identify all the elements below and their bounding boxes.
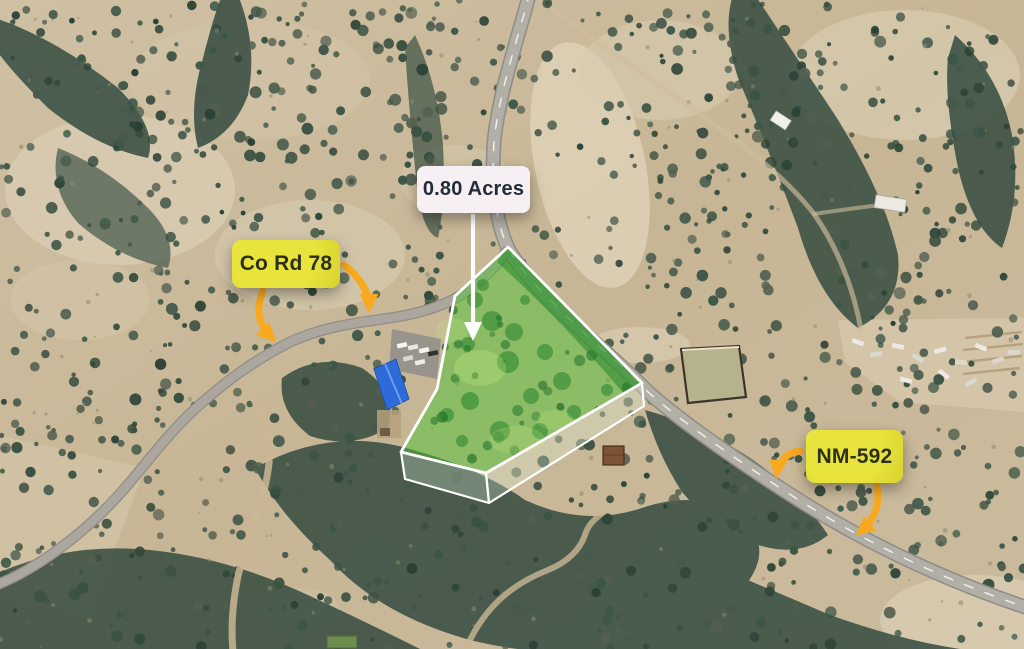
tree	[617, 101, 624, 108]
tree	[406, 152, 413, 159]
tree	[982, 383, 992, 393]
tree	[663, 504, 667, 508]
tree	[679, 212, 690, 223]
tree	[386, 56, 393, 63]
shrub	[131, 41, 134, 44]
shrub	[235, 52, 239, 56]
tree	[706, 174, 712, 180]
tree	[76, 35, 84, 43]
tree	[785, 638, 790, 643]
tree	[490, 59, 497, 66]
tree	[897, 366, 903, 372]
shrub	[70, 181, 75, 186]
shrub	[202, 118, 206, 122]
tree	[889, 564, 894, 569]
tree	[408, 8, 412, 12]
tree	[65, 435, 74, 444]
tree	[345, 450, 352, 457]
tree	[821, 190, 829, 198]
tree	[287, 301, 294, 308]
tree	[632, 164, 637, 169]
tree	[113, 324, 120, 331]
tree	[722, 482, 729, 489]
shrub	[87, 618, 92, 623]
tree	[934, 222, 939, 227]
acreage-label-text: 0.80 Acres	[423, 178, 524, 201]
tree	[452, 583, 460, 591]
tree	[985, 463, 992, 470]
tree	[760, 397, 765, 402]
tree	[367, 583, 371, 587]
shrub	[150, 268, 155, 273]
tree	[328, 125, 338, 135]
deck-shed	[380, 428, 390, 436]
tree	[421, 522, 429, 530]
shrub	[86, 300, 91, 305]
shrub	[943, 528, 948, 533]
tree	[68, 471, 76, 479]
shrub	[28, 79, 31, 82]
tree	[646, 455, 654, 463]
tree	[946, 97, 958, 109]
tree	[602, 615, 613, 626]
tree	[919, 134, 927, 142]
tree	[697, 522, 707, 532]
tree	[1004, 573, 1013, 582]
tree	[540, 230, 550, 240]
tree	[742, 484, 751, 493]
tree	[741, 172, 746, 177]
tree	[300, 206, 306, 212]
shrub	[475, 21, 477, 23]
shrub	[198, 512, 200, 514]
tree	[820, 352, 831, 363]
tree	[836, 302, 841, 307]
tree	[914, 542, 921, 549]
tree	[768, 512, 779, 523]
tree	[748, 103, 753, 108]
shrub	[695, 279, 697, 281]
tree	[241, 211, 246, 216]
tree	[608, 246, 612, 250]
shrub	[82, 402, 85, 405]
shrub	[108, 83, 111, 86]
tree	[645, 284, 650, 289]
tree	[555, 227, 561, 233]
tree	[795, 455, 803, 463]
tree	[372, 290, 380, 298]
tree	[596, 12, 601, 17]
tree	[788, 137, 799, 148]
tree	[13, 609, 17, 613]
tree	[36, 28, 45, 37]
tree	[294, 16, 300, 22]
tree	[812, 160, 818, 166]
tree	[43, 67, 49, 73]
shrub	[722, 613, 726, 617]
tree	[426, 49, 433, 56]
tree	[419, 267, 425, 273]
tree	[871, 26, 879, 34]
tree	[91, 362, 95, 366]
tree	[636, 23, 642, 29]
tree	[387, 99, 393, 105]
tree	[176, 378, 182, 384]
tree	[435, 91, 446, 102]
tree	[119, 218, 123, 222]
tree	[159, 389, 167, 397]
tree	[25, 304, 33, 312]
tree	[234, 54, 242, 62]
shrub	[659, 547, 663, 551]
tree	[957, 635, 965, 643]
tree	[757, 254, 765, 262]
tree	[334, 520, 343, 529]
tree	[254, 213, 263, 222]
tree	[328, 363, 332, 367]
tree	[1010, 198, 1018, 206]
tree	[45, 232, 50, 237]
tree	[10, 56, 15, 61]
tree	[69, 377, 79, 387]
tree	[903, 398, 913, 408]
tree	[924, 164, 933, 173]
tree	[225, 346, 230, 351]
tree	[226, 290, 232, 296]
tree	[304, 414, 309, 419]
tree	[171, 152, 182, 163]
tree	[267, 607, 271, 611]
tree	[164, 164, 172, 172]
tree	[43, 485, 53, 495]
tree	[686, 14, 690, 18]
nm-592-label: NM-592	[806, 430, 903, 483]
tree	[131, 444, 141, 454]
shrub	[34, 18, 37, 21]
shrub	[991, 445, 995, 449]
tree	[252, 462, 264, 474]
shrub	[166, 111, 168, 113]
tree	[965, 221, 970, 226]
shrub	[941, 600, 944, 603]
tree	[754, 122, 762, 130]
tree	[222, 604, 228, 610]
tree	[172, 180, 176, 184]
tree	[660, 59, 666, 65]
tree	[806, 521, 815, 530]
tree	[173, 240, 179, 246]
tree	[912, 498, 924, 510]
tree	[301, 377, 309, 385]
tree	[347, 479, 353, 485]
tree	[934, 71, 939, 76]
tree	[714, 190, 720, 196]
tree	[78, 235, 84, 241]
tree	[185, 127, 191, 133]
tree	[917, 272, 923, 278]
shrub	[908, 579, 910, 581]
tree	[646, 253, 657, 264]
tree	[296, 484, 302, 490]
tree	[396, 40, 407, 51]
tree	[723, 246, 730, 253]
tree	[344, 433, 355, 444]
tree	[738, 529, 744, 535]
tree	[605, 606, 615, 616]
tree	[136, 130, 144, 138]
tree	[14, 266, 20, 272]
shrub	[969, 235, 972, 238]
tree	[309, 451, 319, 461]
tree	[349, 9, 356, 16]
tree	[11, 442, 22, 453]
tree	[220, 364, 230, 374]
tree	[833, 61, 838, 66]
tree	[881, 290, 887, 296]
tree	[82, 336, 88, 342]
tree	[236, 403, 246, 413]
tree	[167, 51, 177, 61]
tree	[974, 83, 984, 93]
tree	[369, 558, 378, 567]
tree	[244, 150, 256, 162]
tree	[805, 407, 810, 412]
tree	[479, 16, 489, 26]
tree	[46, 425, 51, 430]
tree	[820, 341, 828, 349]
tree	[195, 301, 206, 312]
tree	[671, 63, 683, 75]
tree	[250, 222, 260, 232]
tree	[669, 268, 678, 277]
tree	[268, 38, 276, 46]
tree	[915, 455, 919, 459]
tree	[274, 578, 285, 589]
tree	[547, 120, 557, 130]
tree	[1010, 164, 1016, 170]
tree	[7, 279, 13, 285]
shrub	[241, 299, 245, 303]
tree	[846, 183, 854, 191]
tree	[349, 178, 355, 184]
tree	[616, 615, 621, 620]
tree	[426, 155, 435, 164]
tree	[836, 359, 842, 365]
shrub	[570, 254, 573, 257]
tree	[992, 326, 1003, 337]
tree	[220, 210, 225, 215]
tree	[152, 183, 161, 192]
tree	[425, 507, 432, 514]
tree	[652, 131, 658, 137]
tree	[22, 6, 30, 14]
tree	[752, 516, 757, 521]
tree	[829, 228, 835, 234]
tree	[968, 300, 978, 310]
tree	[481, 109, 487, 115]
tree	[733, 28, 740, 35]
tree	[111, 6, 121, 16]
tree	[403, 295, 408, 300]
tree	[95, 85, 100, 90]
tree	[236, 530, 246, 540]
tree	[390, 193, 396, 199]
tree	[710, 169, 715, 174]
tree	[460, 545, 468, 553]
tree	[861, 261, 868, 268]
tree	[664, 283, 670, 289]
tree	[344, 471, 349, 476]
tree	[202, 499, 209, 506]
tree	[398, 53, 407, 62]
tree	[715, 287, 726, 298]
tree	[310, 68, 321, 79]
tree	[858, 497, 867, 506]
shrub	[471, 606, 476, 611]
tree	[866, 488, 872, 494]
tree	[384, 38, 395, 49]
shrub	[447, 239, 449, 241]
tree	[767, 563, 776, 572]
shrub	[645, 45, 649, 49]
shrub	[1012, 146, 1016, 150]
tree	[872, 402, 877, 407]
tree	[194, 602, 203, 611]
tree	[769, 205, 774, 210]
tree	[171, 547, 176, 552]
tree	[433, 268, 439, 274]
tree	[895, 630, 902, 637]
tree	[697, 129, 703, 135]
tree	[946, 25, 950, 29]
tree	[166, 303, 178, 315]
tree	[729, 484, 738, 493]
tree	[202, 527, 207, 532]
tree	[1009, 391, 1017, 399]
tree	[305, 189, 316, 200]
tree	[569, 497, 574, 502]
tree	[964, 46, 974, 56]
tree	[491, 241, 496, 246]
tree	[835, 485, 841, 491]
tree	[230, 529, 235, 534]
shrub	[477, 38, 480, 41]
shrub	[762, 577, 765, 580]
tree	[373, 577, 382, 586]
tree	[223, 466, 230, 473]
tree	[853, 554, 863, 564]
tree	[358, 149, 369, 160]
tree	[789, 71, 799, 81]
tree	[236, 134, 244, 142]
tree	[674, 258, 682, 266]
tree	[704, 93, 713, 102]
tree	[165, 90, 170, 95]
tree	[817, 69, 824, 76]
shrub	[343, 568, 346, 571]
tree	[26, 619, 31, 624]
tree	[659, 54, 663, 58]
tree	[718, 319, 730, 331]
tree	[960, 88, 968, 96]
tree	[279, 183, 287, 191]
tree	[34, 591, 46, 603]
tree	[779, 558, 787, 566]
tree	[161, 283, 171, 293]
tree	[750, 2, 756, 8]
tree	[156, 406, 161, 411]
tree	[58, 175, 65, 182]
tree	[198, 85, 209, 96]
tree	[3, 163, 10, 170]
tree	[307, 398, 317, 408]
tree	[760, 438, 768, 446]
tree	[711, 621, 722, 632]
tree	[540, 535, 546, 541]
tree	[20, 331, 28, 339]
tree	[837, 505, 843, 511]
tree	[44, 77, 53, 86]
tree	[594, 254, 604, 264]
shrub	[51, 19, 53, 21]
tree	[129, 121, 136, 128]
tree	[606, 495, 614, 503]
tree	[967, 41, 972, 46]
tree	[99, 532, 105, 538]
nm-592-label-text: NM-592	[817, 445, 893, 469]
tree	[87, 223, 91, 227]
tree	[250, 86, 262, 98]
tree	[768, 353, 774, 359]
tree	[302, 2, 308, 8]
tree	[34, 442, 38, 446]
tree	[155, 25, 164, 34]
tree	[297, 113, 307, 123]
tree	[297, 620, 308, 631]
tree	[731, 18, 736, 23]
shrub	[169, 15, 172, 18]
tree	[279, 40, 286, 47]
tree	[694, 222, 698, 226]
tree	[1009, 467, 1021, 479]
tree	[208, 286, 215, 293]
tree	[366, 11, 375, 20]
tree	[84, 63, 92, 71]
tree	[436, 103, 448, 115]
tree	[11, 347, 20, 356]
tree	[178, 131, 187, 140]
tree	[674, 397, 679, 402]
tree	[936, 428, 940, 432]
tree	[166, 232, 176, 242]
tree	[625, 636, 632, 643]
tree	[953, 137, 958, 142]
tree	[434, 1, 439, 6]
tree	[380, 154, 387, 161]
tree	[910, 364, 919, 373]
tree	[879, 326, 883, 330]
tree	[587, 550, 594, 557]
tree	[200, 151, 207, 158]
tree	[935, 535, 947, 547]
tree	[916, 182, 922, 188]
tree	[95, 416, 103, 424]
tree	[634, 416, 646, 428]
tree	[78, 54, 86, 62]
tree	[923, 207, 931, 215]
tree	[1000, 273, 1008, 281]
tree	[532, 225, 540, 233]
